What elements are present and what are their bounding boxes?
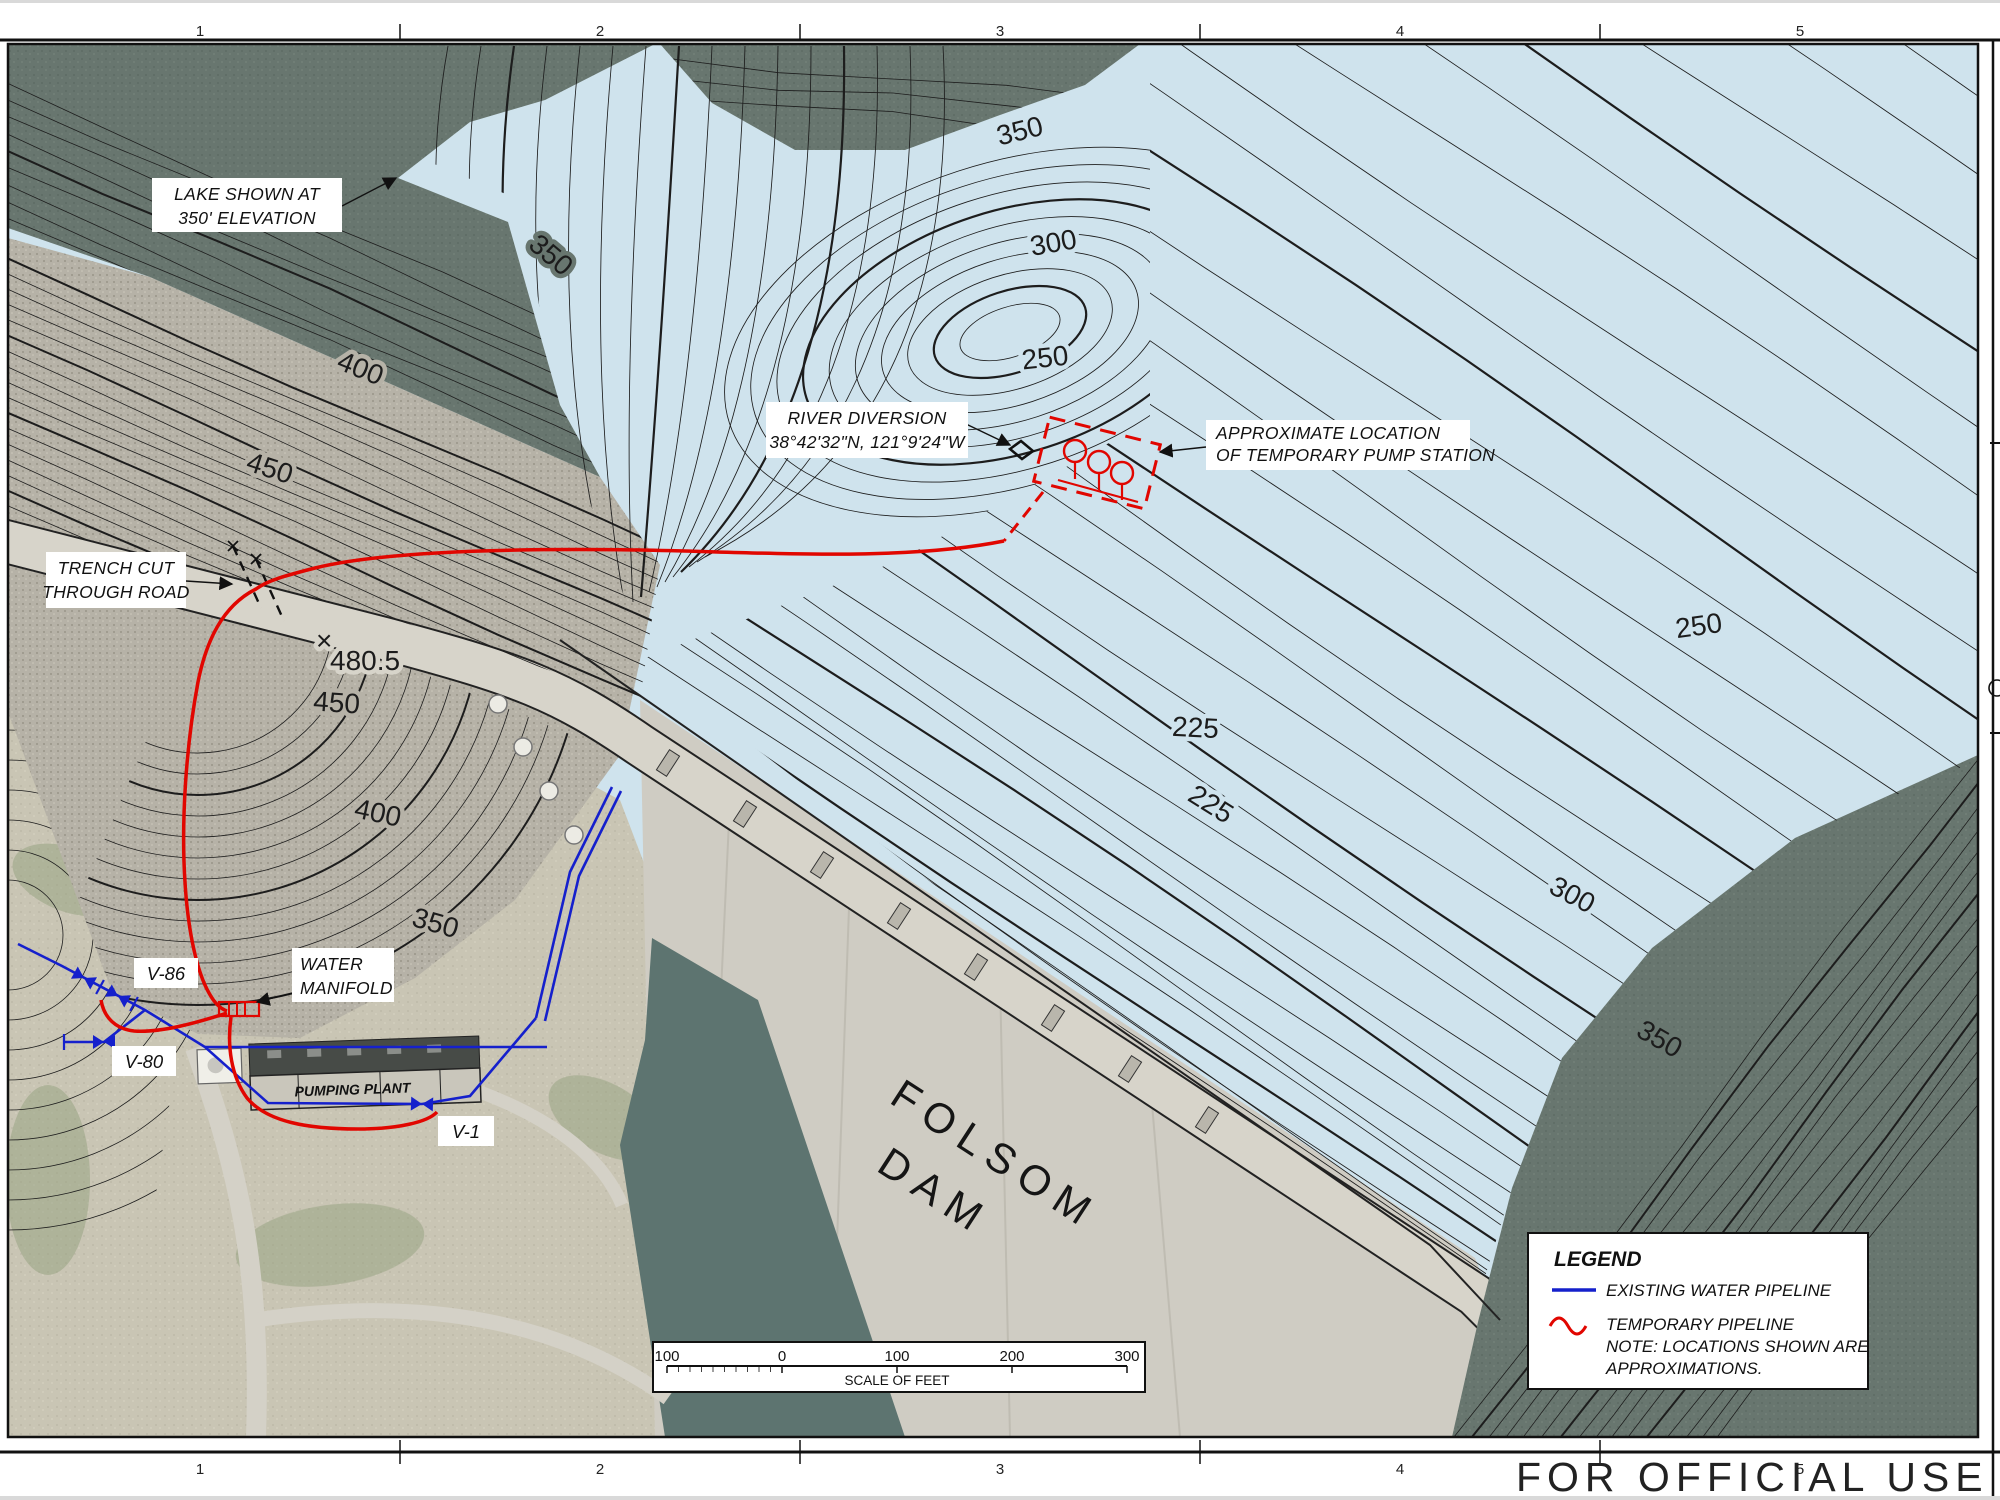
trench-line1: TRENCH CUT — [58, 558, 176, 578]
border-number: 2 — [596, 1461, 604, 1478]
trench-line2: THROUGH ROAD — [42, 582, 190, 602]
scale-tick-label: 200 — [999, 1348, 1024, 1365]
river-diversion-line2: 38°42'32"N, 121°9'24"W — [769, 432, 966, 452]
river-diversion-line1: RIVER DIVERSION — [787, 408, 946, 428]
valve-86-label: V-86 — [147, 963, 186, 984]
scale-tick-label: 100 — [884, 1348, 909, 1365]
legend-temporary-note1: NOTE: LOCATIONS SHOWN ARE — [1606, 1337, 1869, 1356]
pump-station-line1: APPROXIMATE LOCATION — [1215, 423, 1440, 443]
contour-label-450: 450 — [312, 685, 361, 719]
screen-edge-top — [0, 0, 2000, 3]
manifold-line2: MANIFOLD — [300, 978, 393, 998]
contour-label-250: 250 — [1673, 607, 1724, 644]
cylinder-tank — [514, 738, 532, 756]
legend: LEGEND EXISTING WATER PIPELINE TEMPORARY… — [1528, 1233, 1869, 1389]
legend-temporary-note2: APPROXIMATIONS. — [1605, 1359, 1763, 1378]
cylinder-tank — [489, 695, 507, 713]
roof-vent — [427, 1044, 441, 1052]
site-map-canvas: FOLSOM DAM PUMPING PLANT — [0, 0, 2000, 1500]
contour-label-250: 250 — [1020, 340, 1070, 376]
roof-vent — [347, 1047, 361, 1055]
spot-elevation-value: 480.5 — [330, 645, 400, 676]
scale-tick-label: 100 — [654, 1348, 679, 1365]
zone-marker-circle — [1989, 680, 2000, 696]
scale-tick-label: 300 — [1114, 1348, 1139, 1365]
border-number: 4 — [1396, 23, 1404, 40]
roof-vent — [267, 1050, 281, 1058]
legend-existing-label: EXISTING WATER PIPELINE — [1606, 1281, 1832, 1300]
vegetation — [6, 1085, 90, 1275]
manifold-line1: WATER — [300, 954, 363, 974]
lake-callout-line2: 350' ELEVATION — [178, 208, 316, 228]
lake-callout-line1: LAKE SHOWN AT — [174, 184, 321, 204]
legend-temporary-label: TEMPORARY PIPELINE — [1606, 1315, 1795, 1334]
scale-tick-label: 0 — [778, 1348, 786, 1365]
valve-80-label: V-80 — [125, 1051, 164, 1072]
border-number: 1 — [196, 1461, 204, 1478]
cylinder-tank — [565, 826, 583, 844]
border-number: 1 — [196, 23, 204, 40]
cylinder-tank — [540, 782, 558, 800]
valve-1-label: V-1 — [452, 1121, 480, 1142]
border-number: 3 — [996, 1461, 1004, 1478]
border-numbers-top: 1 2 3 4 5 — [196, 23, 1804, 40]
contour-label-225: 225 — [1171, 711, 1219, 744]
classification-footer: FOR OFFICIAL USE ONLY — [1516, 1454, 2000, 1500]
map-area: FOLSOM DAM PUMPING PLANT — [0, 0, 2000, 1500]
drawing-sheet: FOLSOM DAM PUMPING PLANT — [0, 0, 2000, 1500]
scale-bar: 100 0 100 200 300 SCALE OF FEET — [653, 1342, 1145, 1392]
border-number: 2 — [596, 23, 604, 40]
border-number: 5 — [1796, 23, 1804, 40]
border-number: 3 — [996, 23, 1004, 40]
roof-vent — [307, 1049, 321, 1057]
scale-caption: SCALE OF FEET — [844, 1373, 949, 1388]
pump-station-line2: OF TEMPORARY PUMP STATION — [1216, 445, 1495, 465]
legend-title: LEGEND — [1554, 1248, 1642, 1271]
border-number: 4 — [1396, 1461, 1404, 1478]
